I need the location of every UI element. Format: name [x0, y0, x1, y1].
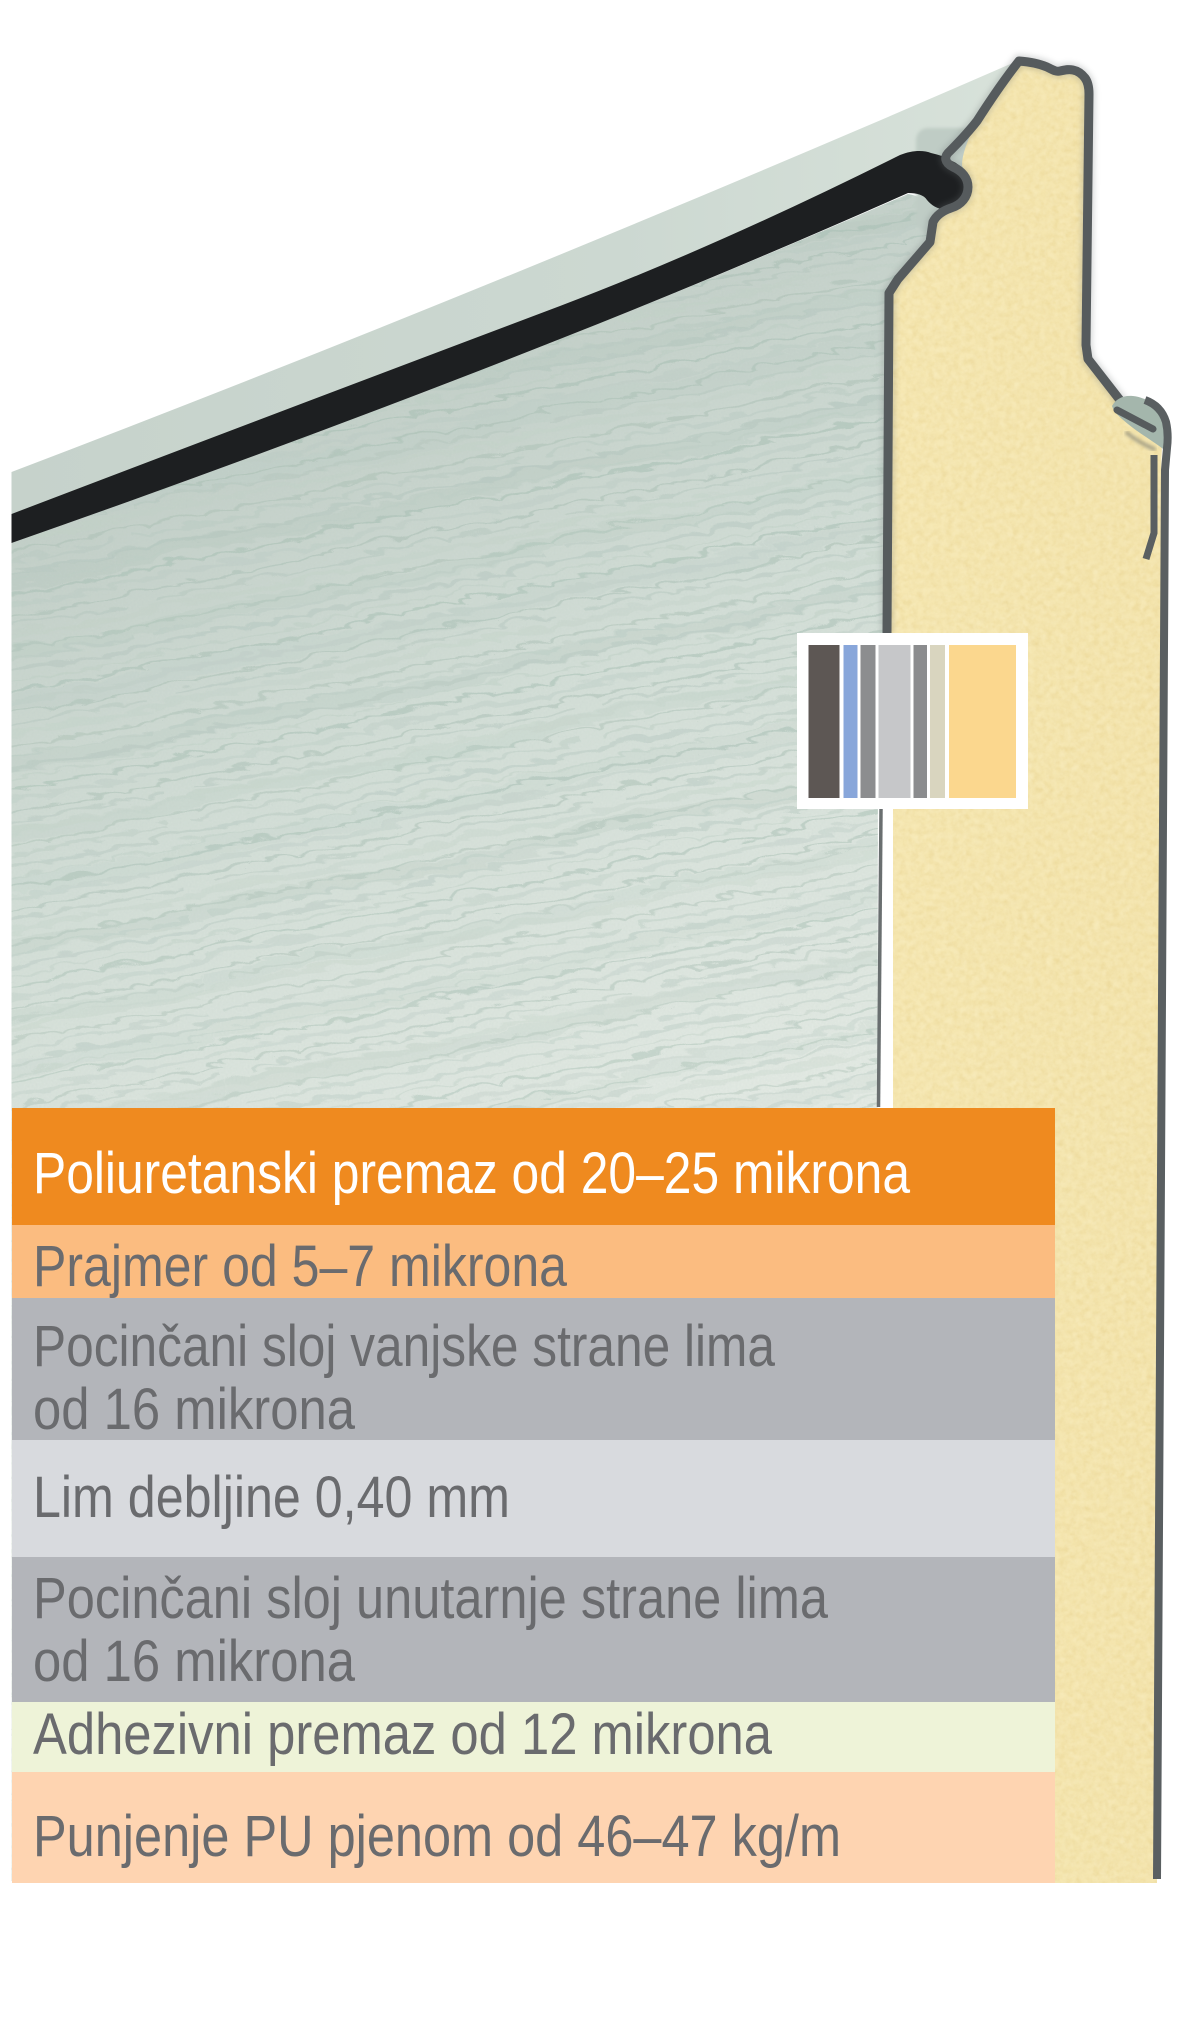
svg-text:od 16 mikrona: od 16 mikrona — [33, 1629, 356, 1694]
svg-text:Pocinčani sloj vanjske strane: Pocinčani sloj vanjske strane lima — [33, 1314, 776, 1379]
svg-text:Poliuretanski premaz od 20–25: Poliuretanski premaz od 20–25 mikrona — [33, 1141, 911, 1206]
svg-text:Lim debljine 0,40 mm: Lim debljine 0,40 mm — [33, 1465, 510, 1530]
svg-text:Pocinčani sloj unutarnje stran: Pocinčani sloj unutarnje strane lima — [33, 1566, 829, 1631]
svg-text:Punjenje PU pjenom od 46–47 kg: Punjenje PU pjenom od 46–47 kg/m — [33, 1804, 841, 1869]
svg-text:od 16 mikrona: od 16 mikrona — [33, 1377, 356, 1442]
svg-text:Adhezivni premaz od 12 mikrona: Adhezivni premaz od 12 mikrona — [33, 1702, 773, 1767]
svg-text:Prajmer od 5–7 mikrona: Prajmer od 5–7 mikrona — [33, 1234, 568, 1299]
